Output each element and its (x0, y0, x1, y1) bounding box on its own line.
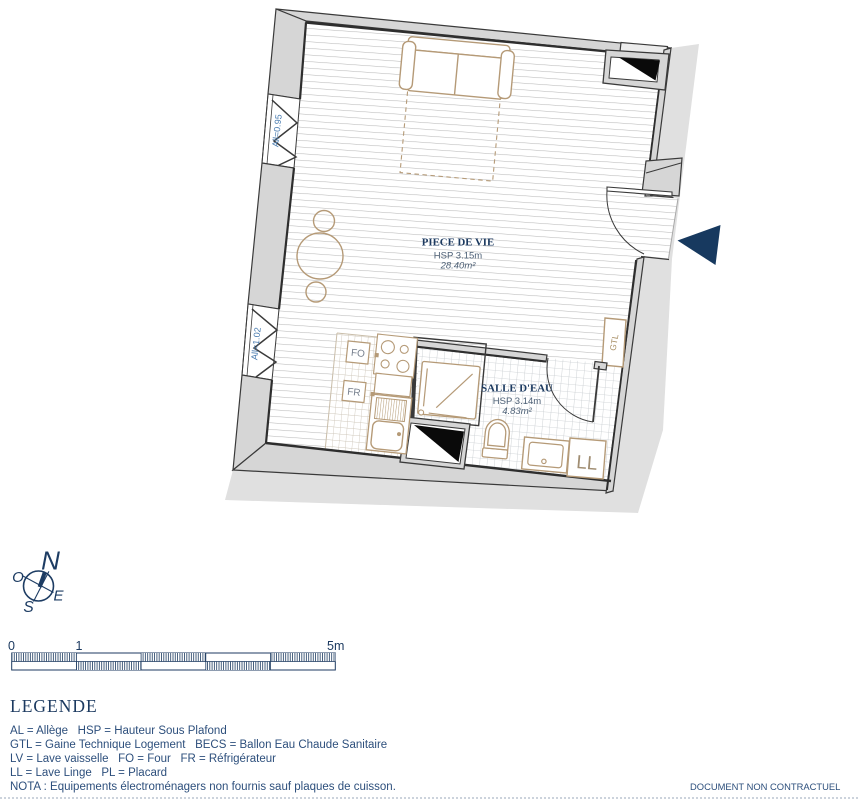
svg-text:DOCUMENT NON CONTRACTUEL: DOCUMENT NON CONTRACTUEL (690, 781, 840, 792)
svg-text:S: S (23, 599, 34, 616)
svg-text:4.83m²: 4.83m² (502, 406, 532, 417)
svg-text:AL = Allège HSP = Hauteur So: AL = Allège HSP = Hauteur Sous Plafond (10, 725, 227, 737)
svg-text:1: 1 (76, 639, 83, 653)
svg-text:SALLE D'EAU: SALLE D'EAU (481, 383, 553, 395)
svg-text:E: E (53, 588, 64, 605)
svg-text:LEGENDE: LEGENDE (10, 696, 98, 716)
svg-text:5m: 5m (327, 639, 344, 653)
svg-text:0: 0 (8, 639, 15, 653)
svg-text:GTL = Gaine Technique Logement: GTL = Gaine Technique Logement BECS = Ba… (10, 739, 387, 751)
svg-text:PIECE DE VIE: PIECE DE VIE (422, 237, 494, 249)
svg-text:LL = Lave Linge PL = Placard: LL = Lave Linge PL = Placard (10, 767, 167, 779)
svg-text:N: N (41, 546, 60, 576)
svg-text:FO: FO (350, 348, 365, 360)
svg-text:28.40m²: 28.40m² (440, 261, 477, 272)
svg-text:O: O (12, 569, 24, 586)
svg-text:LV = Lave vaisselle FO = Fou: LV = Lave vaisselle FO = Four FR = Réfri… (10, 753, 276, 765)
svg-text:NOTA : Equipements électroména: NOTA : Equipements électroménagers non f… (10, 781, 396, 793)
svg-text:LL: LL (575, 452, 598, 475)
svg-text:FR: FR (347, 387, 361, 399)
